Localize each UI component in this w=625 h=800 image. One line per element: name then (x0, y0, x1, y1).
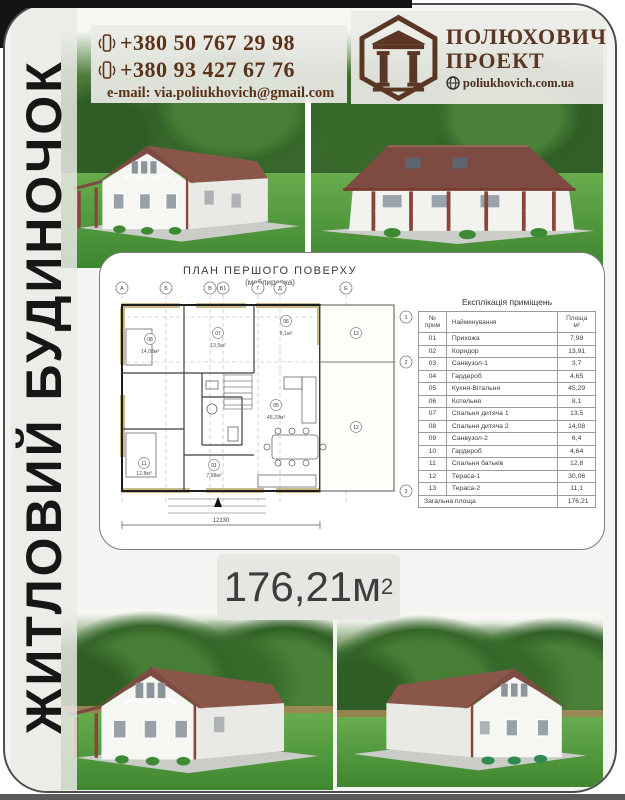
flyer-card: +380 50 767 29 98 +380 93 427 67 76 e-ma… (3, 3, 617, 793)
table-cell: 05 (419, 383, 447, 396)
logo-icon (359, 14, 438, 102)
room-area: 12,8м² (136, 471, 152, 477)
table-cell: 6,4 (558, 433, 596, 446)
table-cell: 45,29 (558, 383, 596, 396)
bottom-right-photo (337, 611, 603, 787)
plan-title: ПЛАН ПЕРШОГО ПОВЕРХУ (120, 265, 420, 277)
house-render-rear-wrap (347, 629, 593, 779)
table-cell: 04 (419, 370, 447, 383)
col-header-name: Найменування (446, 312, 557, 333)
logo-site: poliukhovich.com.ua (463, 76, 574, 91)
table-cell: Спальня дитяча 2 (446, 420, 557, 433)
table-cell: 30,06 (558, 470, 596, 483)
contact-box: +380 50 767 29 98 +380 93 427 67 76 e-ma… (91, 25, 347, 103)
room-number: 08 (147, 337, 153, 343)
room-number: 13 (353, 331, 359, 337)
table-cell: Коридор (446, 345, 557, 358)
room-area: 7,98м² (206, 473, 222, 479)
table-row: 10Гардероб4,64 (419, 445, 596, 458)
table-cell: 07 (419, 408, 447, 421)
table-cell: 08 (419, 420, 447, 433)
table-cell: Тераса-2 (446, 483, 557, 496)
globe-icon (446, 76, 460, 90)
explication-table-body: 01Прихожа7,9802Коридор13,9103Санвузол-13… (419, 333, 596, 496)
table-row: 09Санвузол-26,4 (419, 433, 596, 446)
logo-site-row: poliukhovich.com.ua (446, 76, 607, 91)
table-cell: 4,64 (558, 445, 596, 458)
logo-name: ПОЛЮХОВИЧ (446, 25, 607, 49)
axis-label: В (208, 286, 212, 292)
email-text: e-mail: via.poliukhovich@gmail.com (97, 85, 347, 102)
area-superscript: 2 (381, 572, 393, 602)
dimension-label: 12130 (213, 518, 230, 524)
table-cell: 10 (419, 445, 447, 458)
table-cell: Гардероб (446, 370, 557, 383)
phone-icon (97, 31, 117, 55)
phone-number-2: +380 93 427 67 76 (120, 57, 295, 83)
phone-number-1: +380 50 767 29 98 (120, 30, 295, 56)
table-cell: 4,65 (558, 370, 596, 383)
entrance-arrow-icon (214, 497, 222, 507)
col-header-area: Площа м² (558, 312, 596, 333)
axis-label: 2 (404, 360, 407, 366)
table-cell: Котельня (446, 395, 557, 408)
table-row: 01Прихожа7,98 (419, 333, 596, 346)
axis-label: Е (344, 286, 348, 292)
room-number: 07 (215, 331, 221, 337)
total-label: Загальна площа (419, 495, 558, 508)
axis-label: 1 (404, 315, 407, 321)
axis-label: Б (164, 286, 168, 292)
table-header-row: № прим Найменування Площа м² (419, 312, 596, 333)
table-cell: Санвузол-1 (446, 358, 557, 371)
logo-text: ПОЛЮХОВИЧ ПРОЕКТ poliukhovich.com.ua (446, 25, 607, 91)
table-total-row: Загальна площа 176,21 (419, 495, 596, 508)
room-area: 13,5м² (210, 343, 226, 349)
table-cell: 11 (419, 458, 447, 471)
logo-word: ПРОЕКТ (446, 49, 607, 73)
house-render-front (73, 93, 305, 265)
table-cell: 8,1 (558, 395, 596, 408)
table-cell: 12 (419, 470, 447, 483)
col-header-num: № прим (419, 312, 447, 333)
table-cell: 12,8 (558, 458, 596, 471)
total-value: 176,21 (558, 495, 596, 508)
table-row: 08Спальня дитяча 214,08 (419, 420, 596, 433)
axis-label: Д (278, 286, 282, 292)
house-render-front-2 (69, 628, 325, 780)
phone-icon (97, 58, 117, 82)
table-cell: 13,5 (558, 408, 596, 421)
room-number: 05 (273, 403, 279, 409)
table-row: 13Тераса-211,1 (419, 483, 596, 496)
phone-line-2: +380 93 427 67 76 (97, 56, 347, 83)
table-cell: 06 (419, 395, 447, 408)
room-number: 01 (211, 463, 217, 469)
bottom-left-photo (61, 606, 333, 790)
table-row: 02Коридор13,91 (419, 345, 596, 358)
photo-gap (305, 91, 311, 268)
table-row: 04Гардероб4,65 (419, 370, 596, 383)
table-cell: 3,7 (558, 358, 596, 371)
room-area: 8,1м² (280, 331, 293, 337)
axis-label: Г (257, 286, 260, 292)
house-render-veranda (317, 101, 599, 261)
explication-table: № прим Найменування Площа м² 01Прихожа7,… (418, 311, 596, 508)
total-area-text: 176,21м (224, 563, 381, 611)
table-cell: 09 (419, 433, 447, 446)
table-row: 11Спальня батьків12,8 (419, 458, 596, 471)
table-cell: Санвузол-2 (446, 433, 557, 446)
table-cell: Прихожа (446, 333, 557, 346)
table-row: 03Санвузол-13,7 (419, 358, 596, 371)
table-cell: Спальня батьків (446, 458, 557, 471)
axis-label: А (120, 286, 124, 292)
table-cell: 14,08 (558, 420, 596, 433)
room-number: 06 (283, 319, 289, 325)
table-cell: 7,98 (558, 333, 596, 346)
room-number: 12 (353, 425, 359, 431)
floor-plan-panel: ПЛАН ПЕРШОГО ПОВЕРХУ (меблировка) (99, 252, 605, 550)
table-row: 12Тераса-130,06 (419, 470, 596, 483)
flyer-page: +380 50 767 29 98 +380 93 427 67 76 e-ma… (0, 0, 625, 800)
logo-box: ПОЛЮХОВИЧ ПРОЕКТ poliukhovich.com.ua (351, 11, 607, 104)
total-area-badge: 176,21м2 (217, 554, 400, 620)
table-row: 06Котельня8,1 (419, 395, 596, 408)
table-row: 07Спальня дитяча 113,5 (419, 408, 596, 421)
house-render-rear (347, 629, 593, 779)
axis-label: 3 (404, 489, 407, 495)
table-cell: 02 (419, 345, 447, 358)
explication-title: Експлікація приміщень (418, 297, 596, 307)
phone-line-1: +380 50 767 29 98 (97, 29, 347, 56)
table-cell: Гардероб (446, 445, 557, 458)
table-cell: 03 (419, 358, 447, 371)
room-number: 11 (141, 461, 146, 467)
table-cell: 13,91 (558, 345, 596, 358)
top-black-edge (0, 0, 412, 8)
table-cell: Тераса-1 (446, 470, 557, 483)
flyer-vertical-title: ЖИТЛОВИЙ БУДИНОЧОК (11, 5, 77, 788)
floor-plan-drawing: А Б В В1 Г Д Е 1 2 3 (106, 277, 418, 545)
room-area: 45,29м² (267, 415, 286, 421)
table-cell: Кухня-Вітальня (446, 383, 557, 396)
table-cell: 13 (419, 483, 447, 496)
room-area: 14,08м² (141, 349, 160, 355)
table-cell: 11,1 (558, 483, 596, 496)
bottom-gray-edge (0, 794, 625, 800)
axis-label: В1 (220, 286, 227, 292)
table-cell: Спальня дитяча 1 (446, 408, 557, 421)
table-cell: 01 (419, 333, 447, 346)
table-row: 05Кухня-Вітальня45,29 (419, 383, 596, 396)
